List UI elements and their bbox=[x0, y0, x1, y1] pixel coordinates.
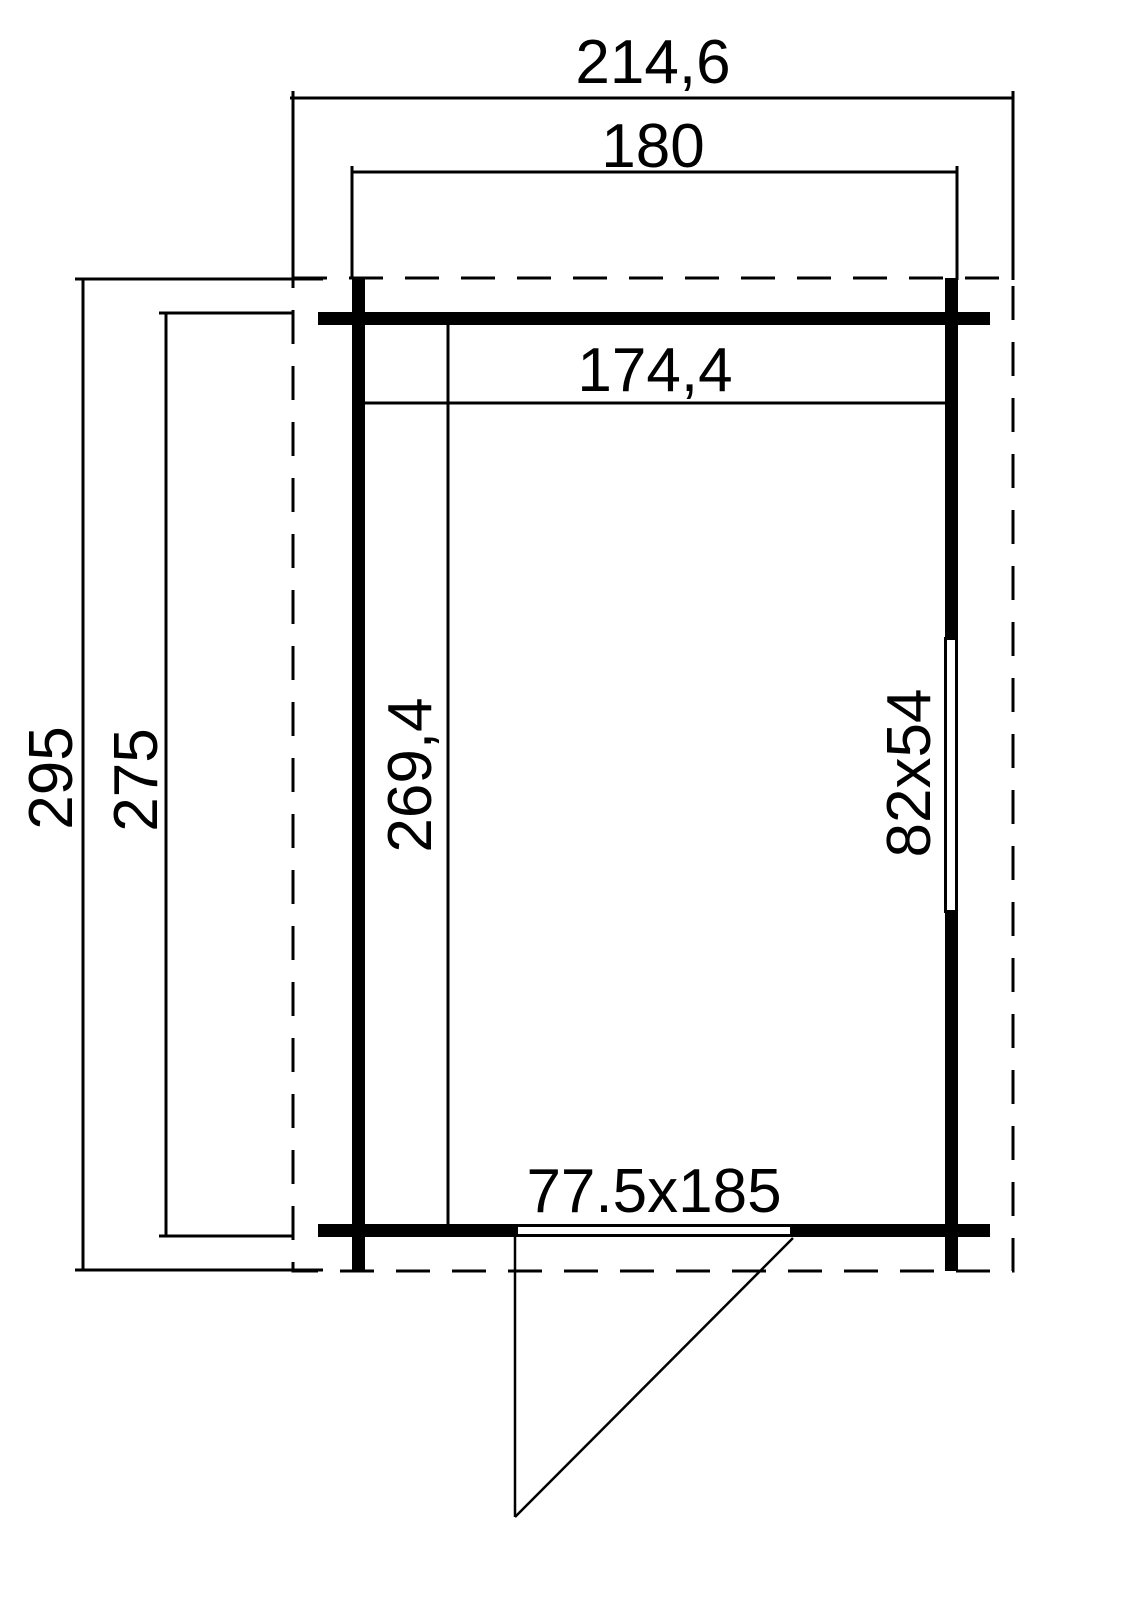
door-swing-diagonal-line bbox=[515, 1238, 793, 1517]
window bbox=[946, 639, 957, 912]
dim-label-roof-depth: 295 bbox=[21, 726, 83, 829]
door-swing bbox=[515, 1237, 793, 1517]
wall-left bbox=[352, 278, 365, 1271]
wall-bottom-right-segment bbox=[793, 1224, 990, 1237]
dim-label-inner-depth: 269,4 bbox=[380, 697, 442, 852]
dim-label-outer-depth: 275 bbox=[106, 728, 168, 831]
dim-label-window-size: 82x54 bbox=[879, 689, 941, 858]
dim-label-outer-width: 180 bbox=[601, 116, 704, 178]
dim-label-door-size: 77.5x185 bbox=[526, 1161, 781, 1223]
floor-plan-canvas: 214,6 180 174,4 295 275 269,4 82x54 77.5… bbox=[0, 0, 1131, 1600]
door-leaf bbox=[517, 1226, 792, 1236]
dim-label-inner-width: 174,4 bbox=[577, 340, 732, 402]
dimension-lines bbox=[75, 91, 1013, 1270]
dim-label-roof-width: 214,6 bbox=[575, 32, 730, 94]
wall-top bbox=[318, 312, 990, 325]
wall-bottom-left-segment bbox=[318, 1224, 515, 1237]
